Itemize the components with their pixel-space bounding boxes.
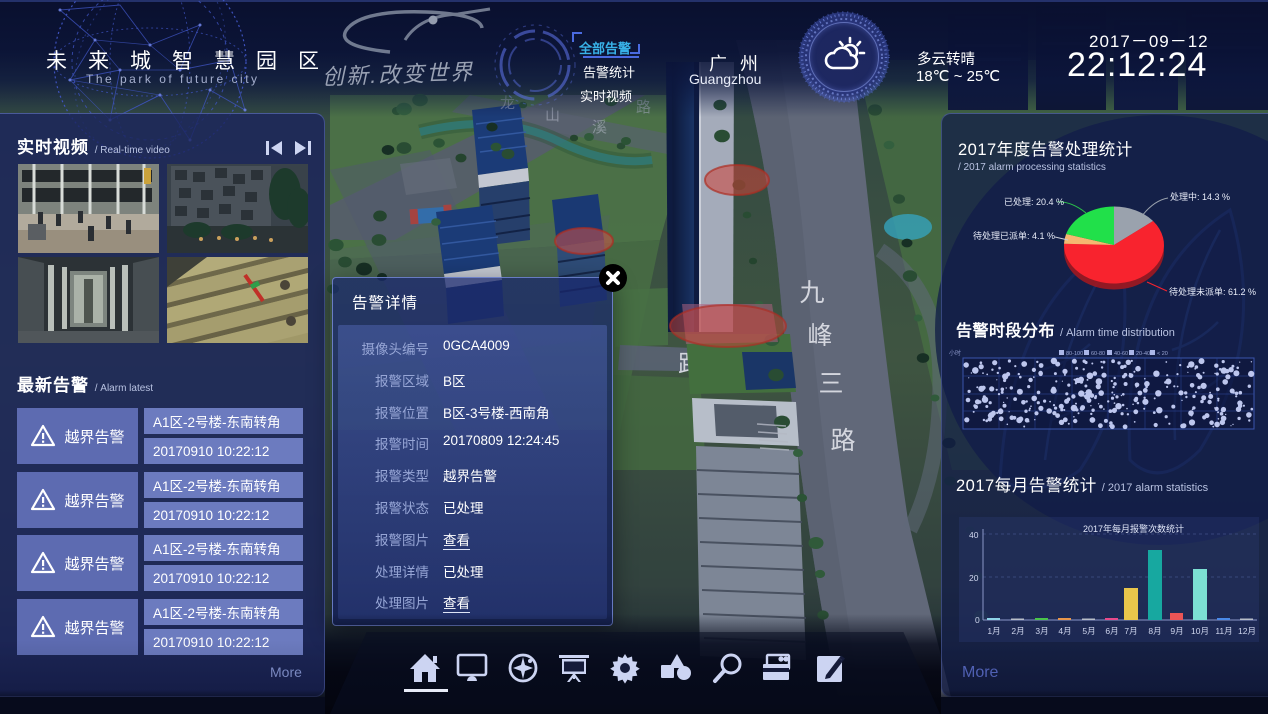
svg-text:40: 40 (969, 530, 979, 540)
svg-text:8月: 8月 (1148, 626, 1161, 636)
svg-text:6月: 6月 (1105, 626, 1118, 636)
svg-text:1月: 1月 (987, 626, 1000, 636)
svg-text:0: 0 (975, 615, 980, 625)
svg-text:4月: 4月 (1058, 626, 1071, 636)
svg-text:3月: 3月 (1035, 626, 1048, 636)
svg-text:11月: 11月 (1215, 626, 1232, 636)
svg-text:10月: 10月 (1191, 626, 1209, 636)
svg-text:7月: 7月 (1124, 626, 1137, 636)
svg-text:20: 20 (969, 573, 979, 583)
svg-text:2月: 2月 (1011, 626, 1024, 636)
svg-text:9月: 9月 (1170, 626, 1183, 636)
svg-text:12月: 12月 (1238, 626, 1256, 636)
svg-text:2017年每月报警次数统计: 2017年每月报警次数统计 (1083, 523, 1184, 534)
svg-text:5月: 5月 (1082, 626, 1095, 636)
